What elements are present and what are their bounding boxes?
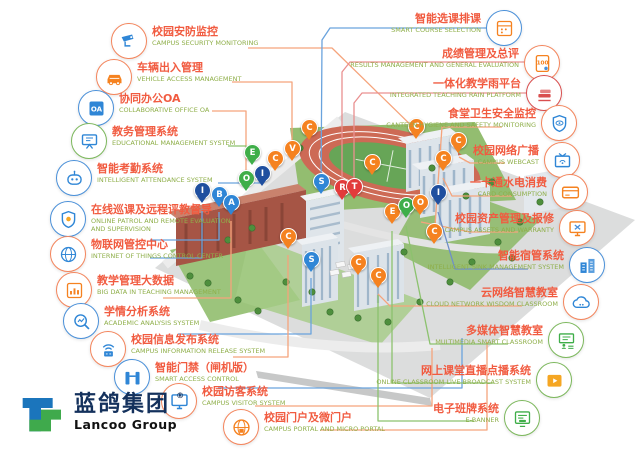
map-pin-c: C — [435, 150, 451, 173]
system-name-cn: 协同办公OA — [119, 93, 209, 105]
system-label-right-5: 一卡通水电消费 CARD CONSUMPTION — [470, 174, 588, 210]
card-icon — [552, 174, 588, 210]
pin-letter: C — [435, 150, 452, 167]
system-name-en: INTELLIGENT SINK MANAGEMENT SYSTEM — [428, 263, 564, 271]
system-label-right-0: 智能选课排课 SMART COURSE SELECTION — [391, 10, 522, 46]
system-name-cn: 食堂卫生安全监控 — [448, 108, 536, 120]
system-name-cn: 校园安防监控 — [152, 26, 258, 38]
smart-campus-infographic: ECVCOIIBASRTCCCCIEOOCSCCC 校园安防监控 CAMPUS … — [0, 0, 640, 450]
pin-letter: S — [313, 173, 330, 190]
system-name-en: CAMPUS VISITOR SYSTEM — [202, 399, 285, 407]
pin-letter: T — [346, 178, 363, 195]
system-name-cn: 一体化教学雨平台 — [433, 78, 521, 90]
pin-letter: I — [254, 165, 271, 182]
system-name-en: RESULTS MANAGEMENT AND GENERAL EVALUATIO… — [350, 61, 519, 69]
system-name-en: CANTEEN HYGIENE AND SAFETY MONITORING — [386, 121, 536, 129]
system-label-left-4: 智能考勤系统 INTELLIGENT ATTENDANCE SYSTEM — [56, 160, 213, 196]
system-name-en: INTEGRATED TEACHING RAIN PLATFORM — [390, 91, 521, 99]
globe-icon — [50, 236, 86, 272]
pin-letter: C — [370, 267, 387, 284]
map-pin-v: V — [284, 140, 300, 163]
pin-letter: C — [426, 223, 443, 240]
system-name-en: CAMPUS WEBCAST — [478, 158, 539, 166]
system-label-left-12: 校园门户及微门户 CAMPUS PORTAL AND MICRO PORTAL — [223, 409, 385, 445]
system-label-right-3: 食堂卫生安全监控 CANTEEN HYGIENE AND SAFETY MONI… — [386, 105, 577, 141]
cloud-icon — [563, 284, 599, 320]
system-name-cn: 校园门户及微门户 — [264, 412, 385, 424]
shield-icon — [50, 201, 86, 237]
system-name-en: BIG DATA IN TEACHING MANAGEMENT — [97, 288, 221, 296]
map-pin-c: C — [364, 154, 380, 177]
pin-letter: O — [412, 194, 429, 211]
system-label-right-6: 校园资产管理及报修 CAMPUS ASSETS AND WARRANTY — [445, 210, 595, 246]
map-pin-c: C — [370, 267, 386, 290]
system-name-cn: 智能宿管系统 — [498, 250, 564, 262]
system-name-en: COLLABORATIVE OFFICE OA — [119, 106, 209, 114]
schedule-icon — [486, 10, 522, 46]
pin-letter: V — [284, 140, 301, 157]
pin-letter: S — [303, 251, 320, 268]
system-name-cn: 车辆出入管理 — [137, 62, 241, 74]
system-name-en: ACADEMIC ANALYSIS SYSTEM — [104, 319, 199, 327]
tv-icon — [544, 142, 580, 178]
map-pin-c: C — [301, 119, 317, 142]
buildings-icon — [569, 247, 605, 283]
system-label-right-4: 校园网络广播 CAMPUS WEBCAST — [473, 142, 580, 178]
system-label-right-11: 电子班牌系统 E-BANNER — [433, 400, 540, 436]
system-name-cn: 教学管理大数据 — [97, 275, 221, 287]
cctv-icon — [111, 23, 147, 59]
brand-name-en: Lancoo Group — [74, 419, 177, 432]
system-name-en: CAMPUS INFORMATION RELEASE SYSTEM — [131, 347, 265, 355]
system-name-cn: 在线巡课及远程评教督导 — [91, 204, 233, 216]
registered-mark: ® — [176, 392, 186, 400]
system-name-en: MULTIMEDIA SMART CLASSROOM — [435, 338, 543, 346]
map-pin-c: C — [280, 228, 296, 251]
system-name-en: CAMPUS SECURITY MONITORING — [152, 39, 258, 47]
system-name-en: INTERNET OF THINGS CONTROL CENTER — [91, 252, 223, 260]
map-pin-o: O — [238, 170, 254, 193]
system-name-cn: 教务管理系统 — [112, 126, 235, 138]
system-name-cn: 校园资产管理及报修 — [455, 213, 554, 225]
system-name-cn: 多媒体智慧教室 — [466, 325, 543, 337]
system-name-cn: 一卡通水电消费 — [470, 177, 547, 189]
system-name-cn: 学情分析系统 — [104, 306, 199, 318]
board-icon — [71, 123, 107, 159]
system-name-cn: 智能选课排课 — [415, 13, 481, 25]
system-label-left-0: 校园安防监控 CAMPUS SECURITY MONITORING — [111, 23, 258, 59]
map-pin-t: T — [346, 178, 362, 201]
system-name-cn: 网上课堂直播点播系统 — [421, 365, 531, 377]
system-label-left-5: 在线巡课及远程评教督导 ONLINE PATROL AND REMOTE EVA… — [50, 201, 233, 237]
system-label-right-9: 多媒体智慧教室 MULTIMEDIA SMART CLASSROOM — [435, 322, 584, 358]
pin-letter: C — [364, 154, 381, 171]
map-pin-c: C — [426, 223, 442, 246]
map-pin-c: C — [350, 254, 366, 277]
oa-icon — [78, 90, 114, 126]
map-pin-o: O — [412, 194, 428, 217]
map-pin-e: E — [244, 144, 260, 167]
map-pin-i: I — [430, 184, 446, 207]
system-name-en: INTELLIGENT ATTENDANCE SYSTEM — [97, 176, 213, 184]
pin-letter: E — [244, 144, 261, 161]
system-name-en: ONLINE PATROL AND REMOTE EVALUATION AND … — [91, 217, 233, 233]
map-pin-s: S — [303, 251, 319, 274]
system-label-right-8: 云网络智慧教室 CLOUD NETWORK WISDOM CLASSROOM — [426, 284, 599, 320]
system-label-right-10: 网上课堂直播点播系统 ONLINE CLASSROOM LIVE BROADCA… — [376, 362, 572, 398]
pin-letter: O — [238, 170, 255, 187]
system-name-cn: 校园信息发布系统 — [131, 334, 265, 346]
system-name-cn: 电子班牌系统 — [433, 403, 499, 415]
pin-letter: I — [430, 184, 447, 201]
lancoo-logo: 蓝鸽集团® Lancoo Group — [16, 388, 177, 438]
map-pin-i: I — [254, 165, 270, 188]
system-name-en: VEHICLE ACCESS MANAGEMENT — [137, 75, 241, 83]
pin-letter: C — [350, 254, 367, 271]
system-name-cn: 智能门禁（闸机版） — [155, 362, 254, 374]
system-name-en: SMART COURSE SELECTION — [391, 26, 481, 34]
system-label-right-7: 智能宿管系统 INTELLIGENT SINK MANAGEMENT SYSTE… — [428, 247, 605, 283]
brand-name-cn: 蓝鸽集团® — [74, 394, 177, 416]
system-name-cn: 校园访客系统 — [202, 386, 285, 398]
system-name-cn: 校园网络广播 — [473, 145, 539, 157]
system-name-cn: 物联网管控中心 — [91, 239, 223, 251]
system-label-left-2: 协同办公OA COLLABORATIVE OFFICE OA — [78, 90, 209, 126]
system-label-left-3: 教务管理系统 EDUCATIONAL MANAGEMENT SYSTEM — [71, 123, 235, 159]
pin-letter: C — [280, 228, 297, 245]
system-name-en: CAMPUS PORTAL AND MICRO PORTAL — [264, 425, 385, 433]
map-pin-s: S — [313, 173, 329, 196]
video-icon — [536, 362, 572, 398]
system-name-en: CARD CONSUMPTION — [478, 190, 547, 198]
pin-letter: C — [301, 119, 318, 136]
system-name-en: ONLINE CLASSROOM LIVE BROADCAST SYSTEM — [376, 378, 531, 386]
lancoo-logo-icon — [16, 388, 66, 438]
system-name-en: CAMPUS ASSETS AND WARRANTY — [445, 226, 554, 234]
system-name-cn: 成绩管理及总评 — [442, 48, 519, 60]
system-name-en: SMART ACCESS CONTROL — [155, 375, 254, 383]
banner-icon — [504, 400, 540, 436]
repair-icon — [559, 210, 595, 246]
system-name-cn: 智能考勤系统 — [97, 163, 213, 175]
system-name-en: E-BANNER — [466, 416, 499, 424]
system-label-left-6: 物联网管控中心 INTERNET OF THINGS CONTROL CENTE… — [50, 236, 223, 272]
system-name-en: EDUCATIONAL MANAGEMENT SYSTEM — [112, 139, 235, 147]
robot-icon — [56, 160, 92, 196]
classroom-icon — [548, 322, 584, 358]
shieldeye-icon — [541, 105, 577, 141]
system-name-cn: 云网络智慧教室 — [481, 287, 558, 299]
system-name-en: CLOUD NETWORK WISDOM CLASSROOM — [426, 300, 558, 308]
portal-icon — [223, 409, 259, 445]
